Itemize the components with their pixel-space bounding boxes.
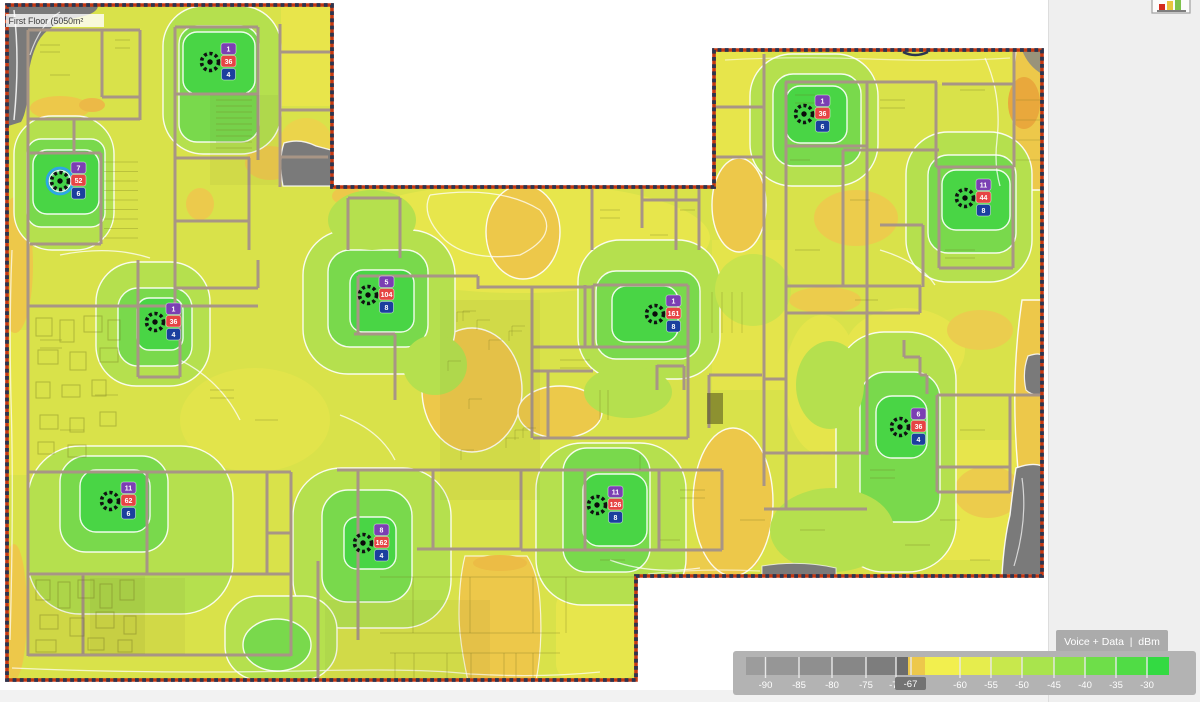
svg-text:36: 36 (819, 111, 827, 118)
svg-text:162: 162 (376, 540, 388, 547)
svg-text:-35: -35 (1109, 680, 1123, 691)
svg-text:-40: -40 (1078, 680, 1092, 691)
svg-text:6: 6 (821, 124, 825, 131)
svg-text:8: 8 (385, 305, 389, 312)
svg-text:First Floor (5050m²: First Floor (5050m² (9, 16, 84, 26)
svg-text:8: 8 (672, 324, 676, 331)
svg-text:1: 1 (672, 298, 676, 305)
svg-text:-90: -90 (759, 680, 773, 691)
svg-text:11: 11 (125, 485, 133, 492)
svg-text:126: 126 (610, 502, 622, 509)
svg-text:8: 8 (982, 208, 986, 215)
svg-text:62: 62 (125, 498, 133, 505)
svg-text:-45: -45 (1047, 680, 1061, 691)
svg-text:11: 11 (980, 182, 988, 189)
svg-text:6: 6 (917, 411, 921, 418)
svg-text:Voice + Data | dBm: Voice + Data | dBm (1064, 636, 1160, 648)
svg-text:36: 36 (225, 59, 233, 66)
svg-text:104: 104 (381, 292, 393, 299)
svg-text:5: 5 (385, 279, 389, 286)
svg-text:4: 4 (227, 72, 231, 79)
svg-text:6: 6 (127, 511, 131, 518)
svg-text:44: 44 (980, 195, 988, 202)
svg-text:-60: -60 (953, 680, 967, 691)
svg-text:4: 4 (172, 332, 176, 339)
svg-text:-55: -55 (984, 680, 998, 691)
svg-text:1: 1 (172, 306, 176, 313)
svg-text:6: 6 (77, 191, 81, 198)
svg-text:-50: -50 (1015, 680, 1029, 691)
svg-text:36: 36 (915, 424, 923, 431)
svg-text:4: 4 (380, 553, 384, 560)
svg-text:36: 36 (170, 319, 178, 326)
svg-text:-67: -67 (904, 679, 918, 690)
svg-text:161: 161 (668, 311, 680, 318)
svg-text:-80: -80 (825, 680, 839, 691)
svg-text:1: 1 (821, 98, 825, 105)
svg-text:8: 8 (380, 527, 384, 534)
svg-text:4: 4 (917, 437, 921, 444)
svg-text:-30: -30 (1140, 680, 1154, 691)
svg-text:1: 1 (227, 46, 231, 53)
svg-text:52: 52 (75, 178, 83, 185)
svg-text:-75: -75 (859, 680, 873, 691)
svg-text:8: 8 (614, 515, 618, 522)
svg-text:11: 11 (612, 489, 620, 496)
svg-text:-85: -85 (792, 680, 806, 691)
svg-text:7: 7 (77, 165, 81, 172)
